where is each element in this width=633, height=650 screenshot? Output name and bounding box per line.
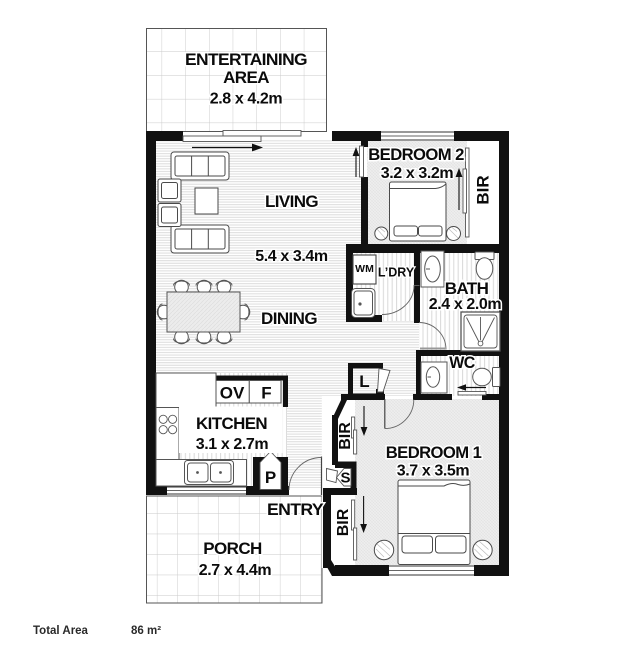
svg-text:P: P — [265, 468, 276, 487]
svg-text:2.8 x 4.2m: 2.8 x 4.2m — [210, 91, 283, 108]
svg-text:DINING: DINING — [261, 309, 317, 328]
svg-text:5.4 x 3.4m: 5.4 x 3.4m — [255, 248, 328, 265]
svg-text:PORCH: PORCH — [203, 539, 262, 558]
svg-text:3.2 x 3.2m: 3.2 x 3.2m — [381, 165, 454, 182]
svg-text:BEDROOM 2: BEDROOM 2 — [368, 145, 464, 164]
svg-text:OV: OV — [220, 384, 245, 403]
svg-text:WC: WC — [449, 353, 475, 372]
svg-text:BIR: BIR — [337, 422, 354, 450]
svg-text:3.1 x 2.7m: 3.1 x 2.7m — [196, 436, 269, 453]
svg-text:KITCHEN: KITCHEN — [196, 414, 267, 433]
svg-text:BEDROOM 1: BEDROOM 1 — [386, 443, 482, 462]
svg-text:2.4 x 2.0m: 2.4 x 2.0m — [429, 296, 502, 313]
svg-text:BIR: BIR — [335, 508, 352, 536]
svg-text:WM: WM — [355, 263, 374, 275]
svg-text:AREA: AREA — [223, 68, 269, 87]
svg-text:Total Area: Total Area — [33, 625, 89, 637]
svg-text:L’DRY: L’DRY — [378, 266, 415, 280]
svg-text:LIVING: LIVING — [265, 192, 318, 211]
svg-text:3.7 x 3.5m: 3.7 x 3.5m — [397, 463, 470, 480]
svg-text:S: S — [340, 470, 350, 487]
svg-text:ENTERTAINING: ENTERTAINING — [185, 50, 307, 69]
svg-text:86 m²: 86 m² — [131, 625, 161, 637]
svg-text:F: F — [261, 384, 271, 403]
svg-text:2.7 x 4.4m: 2.7 x 4.4m — [199, 562, 272, 579]
svg-text:L: L — [359, 372, 369, 391]
svg-text:BIR: BIR — [473, 175, 492, 204]
svg-text:ENTRY: ENTRY — [267, 500, 324, 519]
